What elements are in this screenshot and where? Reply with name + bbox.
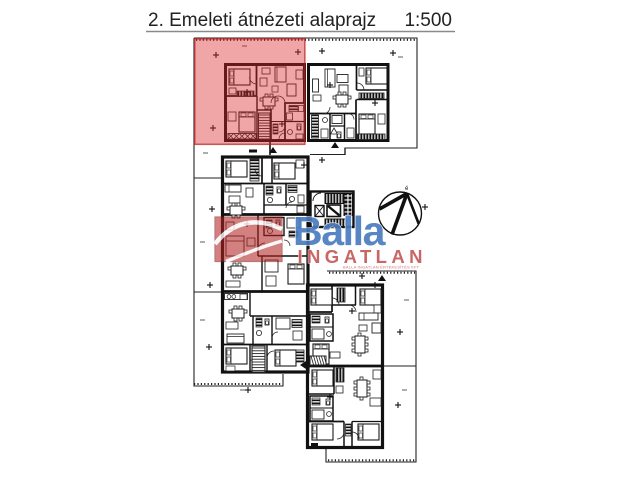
svg-text:1:500: 1:500: [404, 10, 452, 31]
svg-text:2. Emeleti átnézeti alaprajz: 2. Emeleti átnézeti alaprajz: [148, 10, 376, 31]
svg-text:BALLA INGATLAN ÉRTÉKESÍTÉS KFT: BALLA INGATLAN ÉRTÉKESÍTÉS KFT: [343, 265, 420, 270]
